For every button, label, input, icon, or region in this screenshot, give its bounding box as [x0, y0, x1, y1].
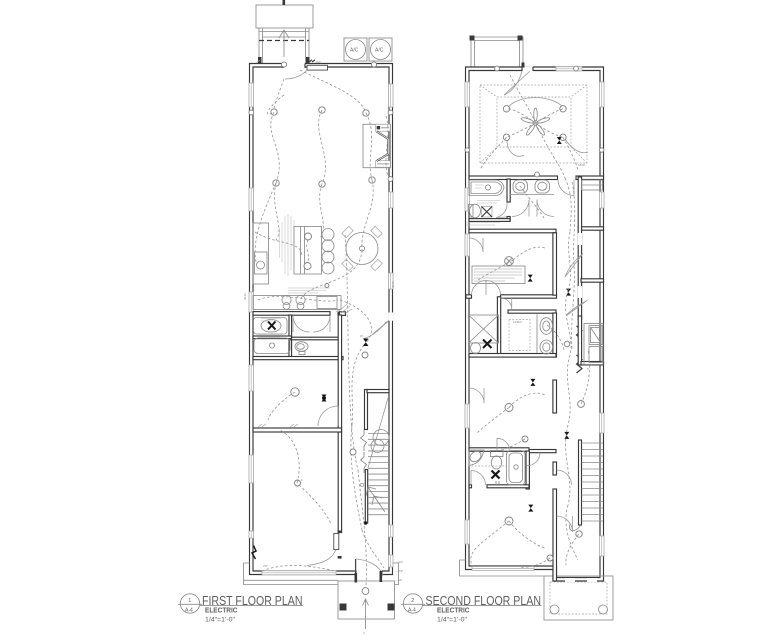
svg-text:1/4"=1'-0": 1/4"=1'-0": [437, 617, 468, 624]
svg-text:A-4: A-4: [408, 608, 416, 614]
svg-text:A-4: A-4: [185, 608, 193, 614]
svg-text:←SP: ←SP: [395, 578, 402, 582]
svg-text:ELECTRIC: ELECTRIC: [437, 606, 470, 615]
svg-text:A/C: A/C: [350, 48, 359, 54]
svg-text:←WP: ←WP: [395, 569, 403, 573]
svg-text:A/C: A/C: [375, 48, 384, 54]
svg-text:←GFI: ←GFI: [395, 560, 403, 564]
svg-text:ELECTRIC: ELECTRIC: [205, 606, 238, 615]
svg-text:3040: 3040: [391, 281, 395, 288]
svg-text:1818: 1818: [578, 163, 585, 167]
svg-text:3040: 3040: [243, 293, 247, 300]
svg-text:1/4"=1'-0": 1/4"=1'-0": [205, 617, 236, 624]
svg-text:LINEN: LINEN: [513, 320, 522, 324]
svg-text:3'0": 3'0": [316, 60, 321, 64]
svg-text:2'8": 2'8": [263, 564, 268, 568]
svg-text:W: W: [360, 334, 363, 338]
svg-text:1: 1: [188, 598, 191, 604]
svg-text:2: 2: [411, 598, 414, 604]
